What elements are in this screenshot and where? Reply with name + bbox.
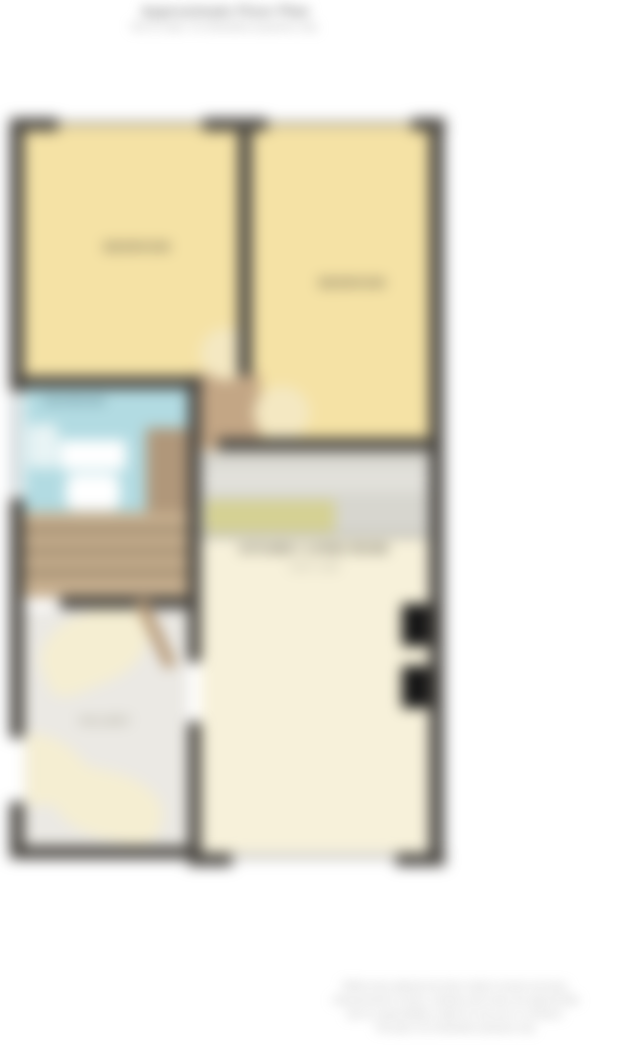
wall-bedroom2-bottom <box>218 438 430 451</box>
wall-left-middle <box>10 498 24 738</box>
wall-central-lower <box>188 722 201 853</box>
hallway-label: HALLWAY <box>35 716 175 727</box>
chimney-breast <box>402 604 430 646</box>
toilet-cistern <box>60 440 126 470</box>
disclaimer-line: This plan is for illustrative purposes o… <box>298 1022 613 1036</box>
wall-bottom-left <box>10 846 202 859</box>
disclaimer-block: Whilst every attempt has been made to en… <box>298 980 613 1036</box>
wall-under-stairs <box>60 596 188 609</box>
wall-bathroom-top <box>10 376 202 389</box>
wall-central-upper <box>188 376 201 662</box>
floorplan-image: BEDROOM BEDROOM BATHROOM KITCHEN / LIVIN… <box>0 0 617 1056</box>
stair-tread-line <box>24 528 188 533</box>
stair-tread-line <box>24 570 188 575</box>
toilet-pan <box>66 474 120 510</box>
plan-subtitle: Not to scale. For illustrative purposes … <box>75 22 375 33</box>
floorplan-page: BEDROOM BEDROOM BATHROOM KITCHEN / LIVIN… <box>0 0 617 1056</box>
plan-title-block: Approximate Floor Plan Not to scale. For… <box>75 3 375 33</box>
window-line-top-left <box>56 122 204 125</box>
plan-title: Approximate Floor Plan <box>75 3 375 20</box>
bedroom1-label: BEDROOM <box>57 240 217 254</box>
wall-bottom-middle-pier <box>188 853 232 866</box>
kitchen-living-dims: 4.90 x 3.80 <box>214 562 414 572</box>
bedroom2-label: BEDROOM <box>272 276 432 290</box>
disclaimer-line: Whilst every attempt has been made to en… <box>298 980 613 994</box>
kitchen-counter-edge <box>201 534 428 538</box>
staircase <box>24 512 188 598</box>
disclaimer-line: and no responsibility is taken for any e… <box>298 1008 613 1022</box>
wall-left-upper <box>10 118 24 392</box>
basin <box>28 424 58 468</box>
chimney-breast <box>402 666 430 708</box>
wall-bedroom-divider <box>238 124 252 376</box>
bathroom-window-line <box>13 396 17 494</box>
stair-tread-line <box>24 549 188 554</box>
disclaimer-line: measurements of doors, windows and rooms… <box>298 994 613 1008</box>
door-swing-arc-bedroom2 <box>254 386 310 440</box>
kitchen-living-label: KITCHEN / LIVING ROOM <box>214 544 414 556</box>
bathroom-label: BATHROOM <box>30 396 120 407</box>
wall-right <box>429 118 444 866</box>
wall-bottom-right-corner <box>396 853 445 866</box>
airing-cupboard <box>146 428 188 512</box>
patio-window-line <box>228 855 398 858</box>
window-line-top-right <box>266 122 413 125</box>
kitchen-worktop-accent <box>205 500 335 532</box>
wall-top-middle <box>203 118 267 131</box>
kitchen-counter-top <box>203 466 428 492</box>
